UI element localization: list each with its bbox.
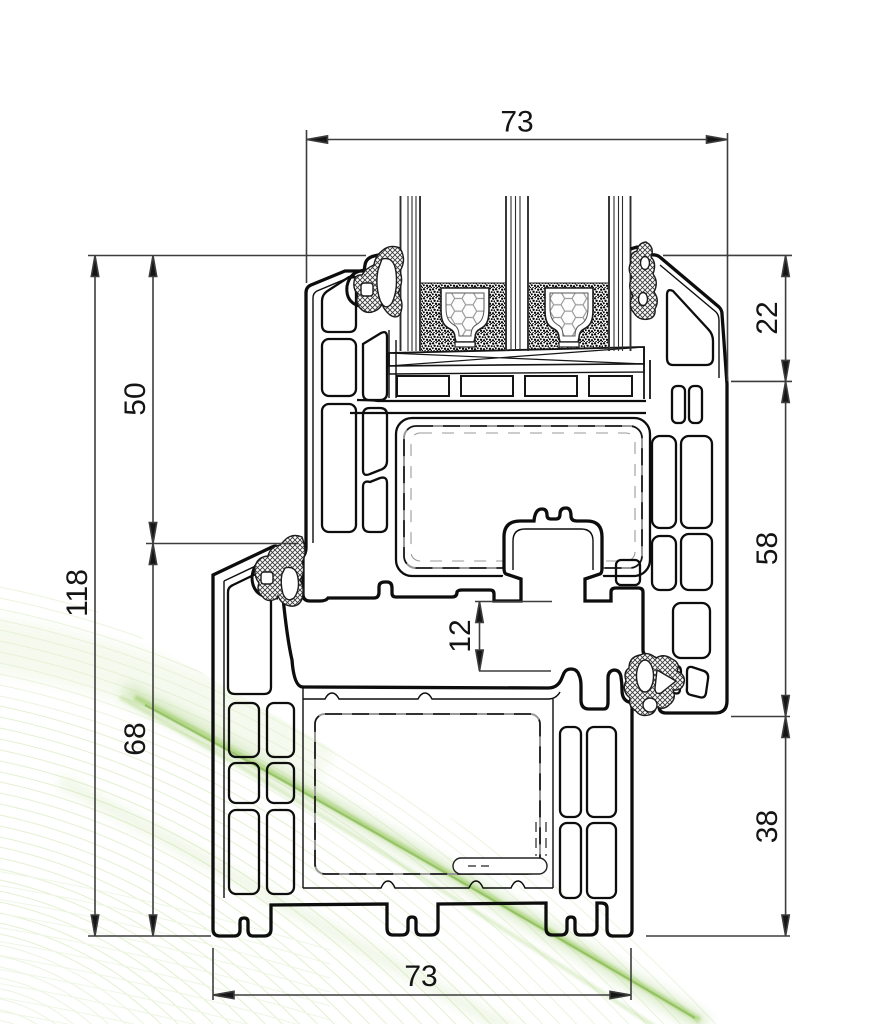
- svg-text:73: 73: [500, 106, 533, 139]
- svg-text:73: 73: [404, 960, 437, 993]
- svg-text:68: 68: [119, 722, 152, 755]
- svg-text:22: 22: [751, 301, 784, 334]
- svg-text:38: 38: [751, 810, 784, 843]
- svg-text:58: 58: [751, 532, 784, 565]
- svg-text:50: 50: [119, 382, 152, 415]
- svg-text:12: 12: [444, 619, 477, 652]
- svg-text:118: 118: [61, 569, 94, 617]
